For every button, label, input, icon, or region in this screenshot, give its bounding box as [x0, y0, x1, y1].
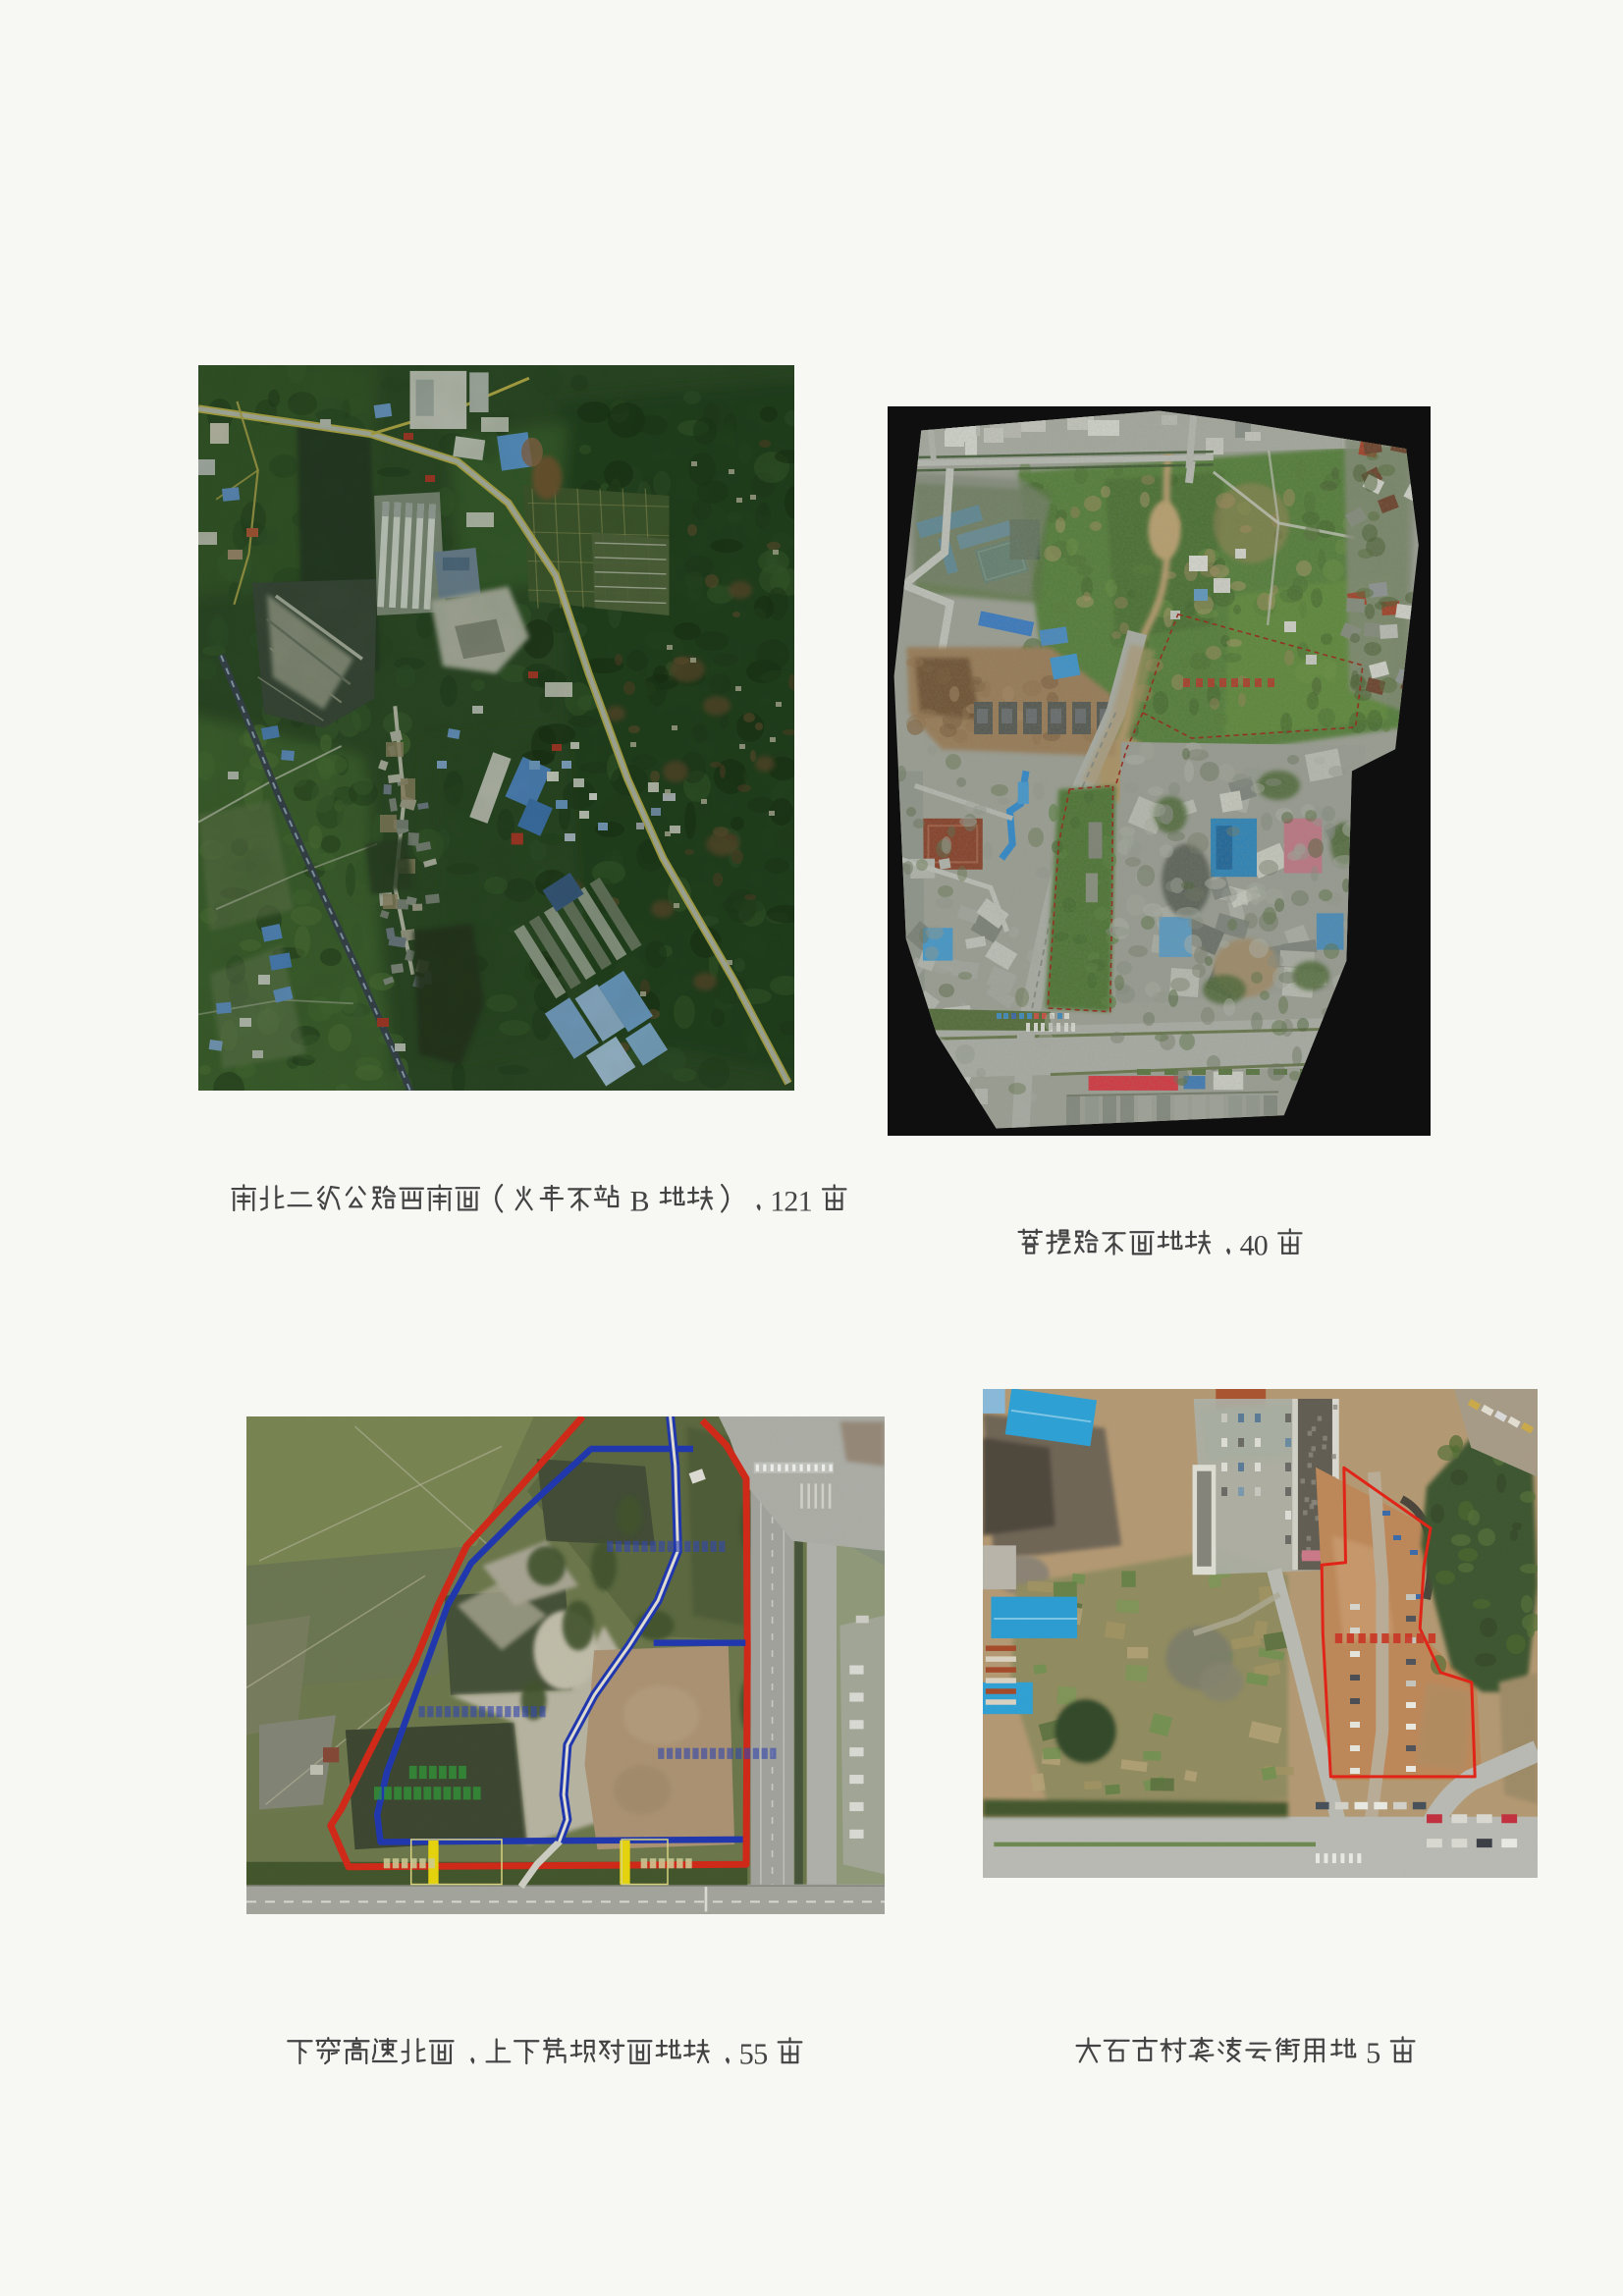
svg-text:1: 1	[798, 1186, 813, 1217]
svg-text:5: 5	[1366, 2037, 1380, 2069]
svg-text:1: 1	[770, 1186, 784, 1217]
svg-text:5: 5	[753, 2038, 768, 2070]
svg-text:4: 4	[1240, 1230, 1255, 1261]
svg-text:0: 0	[1254, 1230, 1269, 1261]
svg-text:5: 5	[739, 2038, 754, 2070]
svg-text:B: B	[630, 1186, 650, 1217]
svg-text:2: 2	[784, 1186, 798, 1217]
